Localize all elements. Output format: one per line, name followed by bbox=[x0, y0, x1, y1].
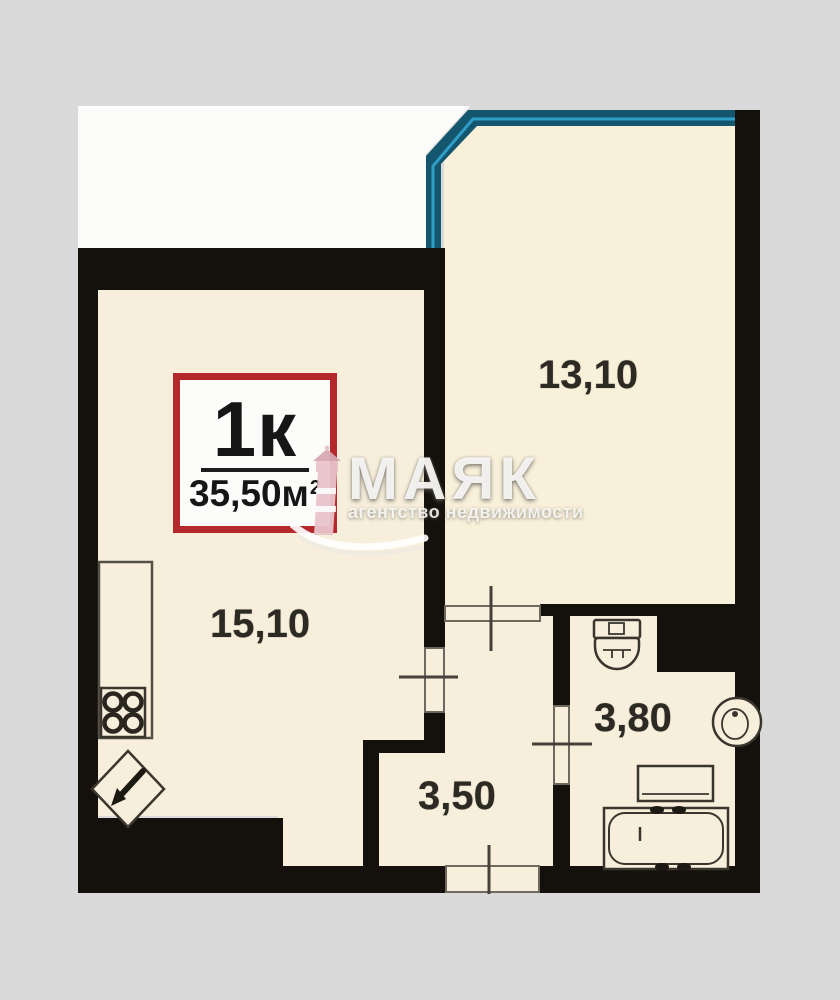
stove-icon bbox=[101, 688, 145, 737]
floor-plan-drawing bbox=[0, 0, 840, 1000]
wall-bath-left-top bbox=[553, 612, 570, 706]
apartment-total-area: 35,50м2 bbox=[189, 475, 321, 512]
wall-right bbox=[735, 110, 760, 893]
wall-jog bbox=[363, 740, 445, 753]
wall-bath-left-bottom bbox=[553, 784, 570, 880]
room-label-kitchen-living: 15,10 bbox=[210, 604, 310, 644]
door-opening-living bbox=[425, 648, 444, 712]
wall-top-left bbox=[78, 248, 444, 290]
wall-mid-vertical bbox=[424, 248, 445, 648]
badge-divider bbox=[201, 468, 309, 472]
room-label-hallway: 3,50 bbox=[418, 776, 496, 816]
area-superscript: 2 bbox=[310, 477, 321, 499]
room-label-bathroom: 3,80 bbox=[594, 698, 672, 738]
room-label-bedroom: 13,10 bbox=[538, 355, 638, 395]
background-white-zone bbox=[78, 106, 470, 248]
wall-bottom-a bbox=[78, 866, 446, 893]
apartment-type-badge: 1к 35,50м2 bbox=[173, 373, 337, 533]
wall-bottom-left-block bbox=[78, 818, 283, 873]
wall-left bbox=[78, 248, 98, 893]
floor-plan: 15,10 13,10 3,80 3,50 1к 35,50м2 МАЯК аг… bbox=[0, 0, 840, 1000]
shelf bbox=[638, 766, 713, 801]
toilet-icon bbox=[594, 620, 640, 669]
bathtub-icon bbox=[604, 806, 728, 871]
door-opening-entrance bbox=[446, 866, 539, 892]
area-value: 35,50м bbox=[189, 473, 309, 514]
washbasin-icon bbox=[713, 698, 761, 746]
apartment-type-label: 1к bbox=[213, 394, 297, 466]
